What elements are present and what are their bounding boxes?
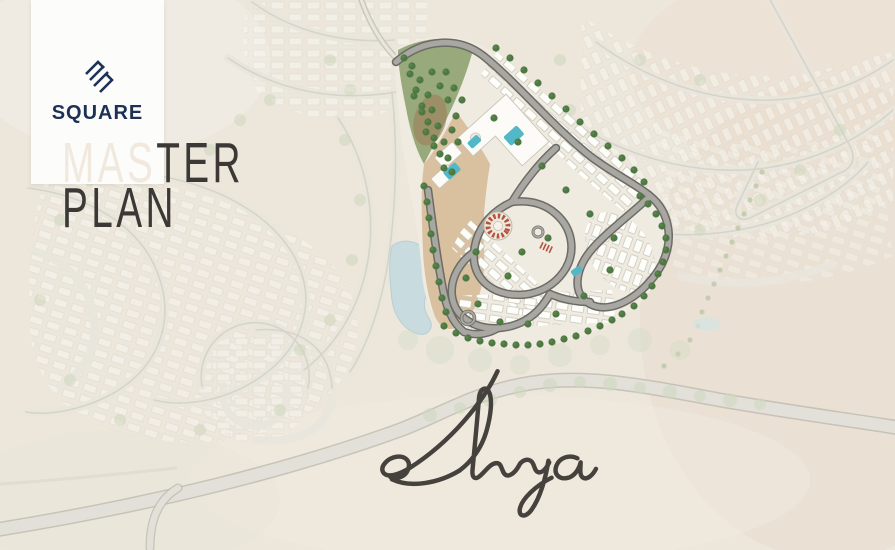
- brand-name: SQUARE: [52, 102, 144, 125]
- project-name-script: [358, 362, 600, 524]
- masterplan-title-line2: PLAN: [62, 186, 244, 231]
- square-logo-icon: [78, 52, 118, 96]
- masterplan-poster: SQUARE MASTER PLAN: [0, 0, 895, 550]
- project-name: [358, 362, 600, 524]
- masterplan-title: MASTER PLAN: [62, 141, 330, 231]
- amphitheater: [484, 212, 512, 240]
